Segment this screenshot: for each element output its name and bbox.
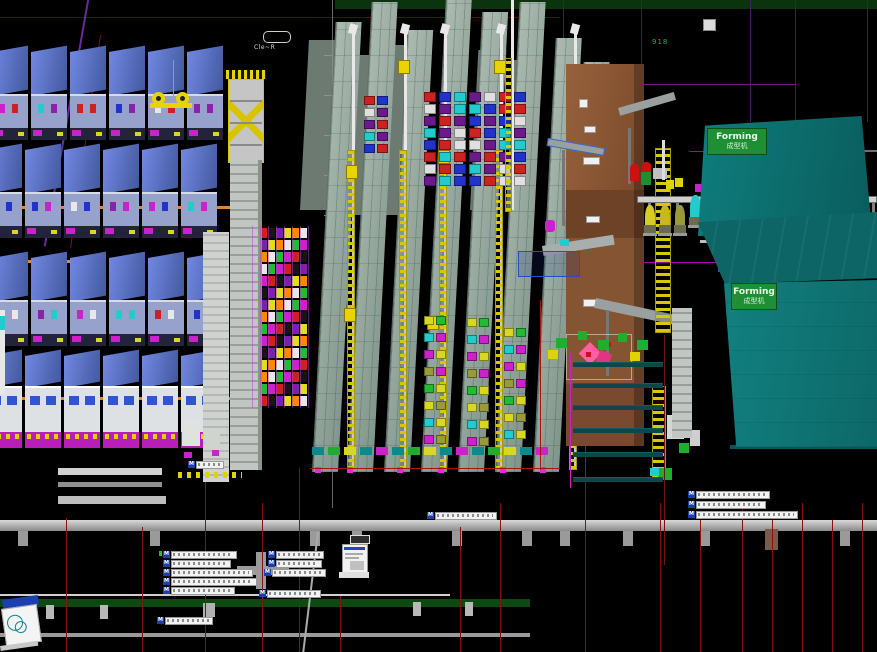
- annotation-label-text: [269, 592, 317, 595]
- machine-block[interactable]: [25, 350, 61, 388]
- white-cabinet: [204, 428, 220, 448]
- storage-bin: [436, 367, 446, 376]
- tower-tag: [579, 99, 588, 108]
- machine-window: [163, 396, 173, 405]
- machine-base-chip: [111, 336, 120, 342]
- cad-viewport[interactable]: Forming 成型机 Forming 成型机 Cle~R 918 MMMMMM…: [0, 0, 877, 652]
- storage-bin: [436, 333, 446, 342]
- machine-block[interactable]: [142, 350, 178, 388]
- storage-bin: [467, 386, 477, 395]
- machine-dot: [129, 104, 135, 113]
- m-badge-icon: M: [157, 617, 164, 624]
- machine-front: [70, 300, 106, 334]
- annotation-label-text: [173, 553, 233, 556]
- doc-card-block: [350, 561, 364, 570]
- machine-front: [64, 192, 100, 226]
- yellow-truss: [505, 58, 512, 212]
- floor-pillar: [623, 531, 633, 546]
- storage-bin: [514, 116, 526, 126]
- storage-bin: [454, 104, 466, 114]
- machine-block[interactable]: [0, 46, 28, 96]
- red-grid-vline: [742, 503, 743, 652]
- red-grid-vline: [862, 503, 863, 652]
- storage-bin: [484, 140, 496, 150]
- machine-front: [148, 300, 184, 334]
- storage-bin: [504, 345, 514, 354]
- storage-bin: [364, 120, 375, 129]
- machine-front: [109, 300, 145, 334]
- machine-dot: [155, 310, 161, 319]
- machine-front: [31, 94, 67, 128]
- storage-bin: [439, 128, 451, 138]
- base-cell: [472, 447, 484, 455]
- machine-front: [25, 192, 61, 226]
- storage-bin: [504, 430, 514, 439]
- storage-bin: [424, 104, 436, 114]
- storage-bin: [364, 108, 375, 117]
- storage-bin: [454, 176, 466, 186]
- mast-carriage: [398, 60, 410, 74]
- machine-dot: [12, 104, 18, 113]
- machine-dot: [116, 104, 122, 113]
- machine-front: [142, 386, 178, 432]
- storage-bin: [377, 108, 388, 117]
- green-speck: [159, 551, 162, 556]
- crane-cable: [173, 60, 174, 96]
- mast-carriage: [344, 308, 356, 322]
- doc-chip: [350, 535, 370, 544]
- storage-bin: [377, 132, 388, 141]
- machine-block[interactable]: [181, 144, 217, 194]
- machine-block[interactable]: [187, 46, 223, 96]
- storage-bin: [424, 435, 434, 444]
- magenta-chip: [212, 450, 219, 456]
- machine-dot: [84, 202, 90, 211]
- annotation-label-text: [173, 562, 227, 565]
- stair-step: [573, 383, 663, 388]
- white-cabinet: [182, 420, 200, 446]
- storage-bin: [454, 92, 466, 102]
- machine-dot: [188, 202, 194, 211]
- storage-bin: [504, 362, 514, 371]
- machine-base-chip: [96, 338, 102, 342]
- storage-bin: [469, 140, 481, 150]
- m-badge-icon: M: [163, 560, 170, 567]
- machine-base-chip: [150, 130, 159, 136]
- machine-block[interactable]: [31, 46, 67, 96]
- scaffold-slat: [230, 144, 262, 146]
- machine-dot: [207, 104, 213, 113]
- machine-dot: [162, 202, 168, 211]
- storage-bin: [484, 104, 496, 114]
- machine-base-chip: [0, 130, 3, 136]
- machine-block[interactable]: [142, 144, 178, 194]
- stair-step: [573, 362, 663, 367]
- storage-bin: [454, 116, 466, 126]
- storage-bin: [439, 152, 451, 162]
- machine-base-chip: [129, 230, 135, 234]
- storage-bin: [514, 140, 526, 150]
- bottle: [660, 205, 670, 225]
- machine-dot: [45, 202, 51, 211]
- cyan-chip: [560, 239, 569, 246]
- scaffold-frame[interactable]: [228, 79, 264, 163]
- storage-bin: [516, 345, 526, 354]
- mosaic-overlay-lines: [252, 226, 312, 408]
- storage-bin: [439, 104, 451, 114]
- machine-block[interactable]: [25, 144, 61, 194]
- machine-window: [0, 396, 1, 405]
- machine-base-chip: [90, 230, 96, 234]
- storage-bin: [436, 384, 446, 393]
- red-grid-vline: [460, 527, 461, 652]
- machine-block[interactable]: [64, 350, 100, 388]
- m-badge-icon: M: [163, 551, 170, 558]
- m-badge-icon: M: [268, 551, 275, 558]
- storage-bin: [514, 92, 526, 102]
- tower-tag: [584, 126, 596, 133]
- storage-bin: [484, 128, 496, 138]
- machine-window: [108, 396, 118, 405]
- storage-bin: [484, 92, 496, 102]
- storage-bin: [516, 413, 526, 422]
- machine-dot: [194, 104, 200, 113]
- storage-bin: [469, 128, 481, 138]
- yellow-dot-row: [178, 472, 242, 478]
- storage-bin: [514, 176, 526, 186]
- machine-front: [187, 94, 223, 128]
- yellow-chip: [630, 352, 640, 361]
- red-line: [540, 300, 541, 470]
- brown-tower-band: [566, 190, 644, 238]
- storage-bin: [364, 96, 375, 105]
- storage-bin: [424, 367, 434, 376]
- red-grid-vline: [340, 596, 341, 652]
- storage-bin: [454, 164, 466, 174]
- machine-dot: [32, 202, 38, 211]
- base-cell: [344, 447, 356, 455]
- purple-vline: [750, 0, 751, 122]
- annotation-label-text: [167, 619, 209, 622]
- machine-block[interactable]: [109, 46, 145, 96]
- storage-bin: [439, 164, 451, 174]
- machine-base-chip: [12, 230, 18, 234]
- storage-bin: [439, 176, 451, 186]
- machine-base-chip: [189, 130, 198, 136]
- floor-pillar: [560, 531, 570, 546]
- green-chip: [598, 340, 609, 350]
- machine-base-dashes: [0, 434, 20, 439]
- machine-dot: [38, 104, 44, 113]
- machine-block[interactable]: [64, 144, 100, 194]
- red-cylinder: [630, 164, 639, 181]
- storage-bin: [439, 116, 451, 126]
- storage-bin: [479, 386, 489, 395]
- storage-bin: [454, 152, 466, 162]
- tower-tag: [583, 157, 600, 165]
- storage-bin: [479, 403, 489, 412]
- storage-bin: [364, 132, 375, 141]
- floor-pillar: [840, 531, 850, 546]
- storage-bin: [467, 318, 477, 327]
- m-badge-icon: M: [163, 578, 170, 585]
- gray-hline: [0, 633, 530, 637]
- crane-wheel-hub: [156, 96, 161, 101]
- white-box: [703, 19, 716, 31]
- storage-bin: [467, 403, 477, 412]
- machine-dot: [110, 202, 116, 211]
- machine-window: [186, 396, 196, 405]
- machine-dot: [6, 202, 12, 211]
- doc-card-line: [345, 553, 363, 555]
- storage-bin: [516, 362, 526, 371]
- storage-bin: [514, 164, 526, 174]
- machine-block[interactable]: [103, 144, 139, 194]
- storage-bin: [484, 176, 496, 186]
- storage-bin: [436, 401, 446, 410]
- storage-bin: [467, 335, 477, 344]
- machine-base-chip: [135, 338, 141, 342]
- annotation-label-text: [437, 514, 493, 517]
- storage-bin: [504, 328, 514, 337]
- brown-tower-band: [566, 384, 644, 446]
- annotation-label-text: [278, 562, 318, 565]
- stair-edge-red: [664, 335, 665, 565]
- machine-dot: [77, 310, 83, 319]
- base-cell: [440, 447, 452, 455]
- white-column: [672, 308, 692, 438]
- mast-truss: [495, 150, 503, 470]
- base-cell: [408, 447, 420, 455]
- machine-base-chip: [105, 228, 114, 234]
- machine-block[interactable]: [148, 252, 184, 302]
- machine-block[interactable]: [31, 252, 67, 302]
- storage-bin: [424, 164, 436, 174]
- machine-dot: [51, 104, 57, 113]
- storage-bin: [469, 152, 481, 162]
- base-cell: [536, 447, 548, 455]
- red-grid-vline: [142, 527, 143, 652]
- storage-bin: [424, 92, 436, 102]
- machine-base-chip: [57, 132, 63, 136]
- yellow-chip: [675, 178, 683, 187]
- green-chip: [641, 172, 651, 185]
- machine-base-chip: [96, 132, 102, 136]
- stair-step: [573, 428, 663, 433]
- storage-bin: [484, 152, 496, 162]
- base-cell: [424, 447, 436, 455]
- base-cell: [312, 447, 324, 455]
- storage-bin: [516, 379, 526, 388]
- annotation-label-text: [698, 513, 794, 516]
- machine-base-chip: [144, 228, 153, 234]
- bottle-plate: [643, 233, 657, 236]
- bottle-plate: [673, 233, 687, 236]
- storage-bin: [469, 104, 481, 114]
- storage-bin: [436, 418, 446, 427]
- machine-base-chip: [183, 228, 192, 234]
- storage-bin: [377, 144, 388, 153]
- machine-base-chip: [213, 132, 219, 136]
- floor-pillar: [413, 602, 421, 616]
- base-cell: [360, 447, 372, 455]
- storage-bin: [454, 140, 466, 150]
- machine-base-chip: [33, 130, 42, 136]
- red-grid-vline: [500, 503, 501, 652]
- storage-bin: [439, 92, 451, 102]
- red-grid-vline: [585, 468, 586, 652]
- storage-bin: [436, 350, 446, 359]
- base-cell: [328, 447, 340, 455]
- storage-bin: [467, 352, 477, 361]
- yellow-chip: [666, 180, 674, 189]
- machine-block[interactable]: [70, 252, 106, 302]
- annotation-label-text: [173, 571, 249, 574]
- storage-bin: [479, 352, 489, 361]
- storage-bin: [469, 164, 481, 174]
- machine-base-chip: [135, 132, 141, 136]
- m-badge-icon: M: [163, 569, 170, 576]
- storage-bin: [484, 116, 496, 126]
- stair-edge-magenta: [570, 353, 571, 488]
- storage-bin: [424, 152, 436, 162]
- gray-bar: [58, 482, 162, 487]
- storage-bin: [364, 144, 375, 153]
- machine-front: [103, 386, 139, 432]
- machine-front: [181, 192, 217, 226]
- machine-dot: [194, 310, 200, 319]
- machine-base-chip: [66, 228, 75, 234]
- storage-bin: [479, 369, 489, 378]
- machine-block[interactable]: [109, 252, 145, 302]
- machine-block[interactable]: [0, 252, 28, 302]
- storage-bin: [514, 152, 526, 162]
- storage-bin: [424, 350, 434, 359]
- magenta-blob: [545, 220, 555, 232]
- machine-base-chip: [57, 338, 63, 342]
- machine-base: [0, 226, 22, 238]
- storage-bin: [479, 318, 489, 327]
- machine-dot: [129, 310, 135, 319]
- machine-front: [142, 192, 178, 226]
- m-badge-icon: M: [163, 587, 170, 594]
- blue-frame-conveyor: [518, 251, 580, 277]
- machine-base-chip: [33, 336, 42, 342]
- machine-base-chip: [111, 130, 120, 136]
- scaffold-slat: [230, 122, 262, 124]
- red-hline: [310, 468, 560, 469]
- storage-bin: [467, 437, 477, 446]
- machine-block[interactable]: [70, 46, 106, 96]
- crane-tag-outline: [263, 31, 291, 43]
- storage-bin: [469, 116, 481, 126]
- machine-dot: [77, 104, 83, 113]
- floor-pillar: [700, 531, 710, 546]
- storage-bin: [479, 335, 489, 344]
- machine-dot: [90, 310, 96, 319]
- storage-bin: [436, 316, 446, 325]
- scaffold-cap: [226, 70, 266, 79]
- machine-dot: [123, 202, 129, 211]
- storage-bin: [424, 128, 436, 138]
- machine-window: [30, 396, 40, 405]
- machine-dot: [90, 104, 96, 113]
- base-cell: [504, 447, 516, 455]
- machine-front: [31, 300, 67, 334]
- storage-bin: [377, 96, 388, 105]
- machine-block[interactable]: [0, 144, 22, 194]
- storage-bin: [454, 128, 466, 138]
- bottle-plate: [658, 233, 672, 236]
- floor-pillar: [100, 605, 108, 619]
- mast-truss: [399, 150, 407, 470]
- red-grid-vline: [772, 520, 773, 652]
- storage-bin: [424, 401, 434, 410]
- machine-window: [7, 396, 17, 405]
- red-grid-vline: [832, 520, 833, 652]
- floor-pillar: [150, 531, 160, 546]
- machine-dot: [116, 310, 122, 319]
- machine-dot: [149, 202, 155, 211]
- machine-block[interactable]: [103, 350, 139, 388]
- m-badge-icon: M: [427, 512, 434, 519]
- storage-bin: [516, 396, 526, 405]
- machine-block[interactable]: [148, 46, 184, 96]
- machine-base-chip: [51, 230, 57, 234]
- storage-bin: [516, 430, 526, 439]
- storage-bin: [439, 140, 451, 150]
- storage-bin: [436, 435, 446, 444]
- mast-pennant: [570, 23, 580, 35]
- storage-bin: [469, 92, 481, 102]
- annotation-label-text: [198, 463, 220, 466]
- storage-bin: [514, 104, 526, 114]
- machine-base-chip: [189, 336, 198, 342]
- storage-bin: [504, 396, 514, 405]
- machine-dot: [71, 202, 77, 211]
- machine-window: [147, 396, 157, 405]
- storage-bin: [516, 328, 526, 337]
- storage-bin: [424, 176, 436, 186]
- mast-carriage: [346, 165, 358, 179]
- base-cell: [456, 447, 468, 455]
- floor-pillar: [465, 602, 473, 616]
- floor-pillar: [46, 605, 54, 619]
- machine-front: [103, 192, 139, 226]
- doc-card-line: [345, 557, 359, 559]
- machine-dot: [51, 310, 57, 319]
- stair-step: [573, 405, 663, 410]
- green-chip: [578, 331, 587, 340]
- base-cell: [520, 447, 532, 455]
- green-chip: [556, 338, 567, 348]
- machine-base-chip: [18, 132, 24, 136]
- crane-hook: [170, 108, 175, 113]
- stair-step: [573, 452, 663, 457]
- machine-window: [69, 396, 79, 405]
- storage-bin: [514, 128, 526, 138]
- scaffold-slat: [230, 100, 262, 102]
- forming-sign-1-subtitle: 成型机: [727, 143, 748, 151]
- machine-base-chip: [18, 338, 24, 342]
- machine-base-chip: [150, 336, 159, 342]
- annotation-label-text: [698, 493, 766, 496]
- machine-base-chip: [174, 132, 180, 136]
- storage-bin: [469, 176, 481, 186]
- m-badge-icon: M: [688, 511, 695, 518]
- machine-base-chip: [27, 228, 36, 234]
- tower-tag: [586, 216, 600, 223]
